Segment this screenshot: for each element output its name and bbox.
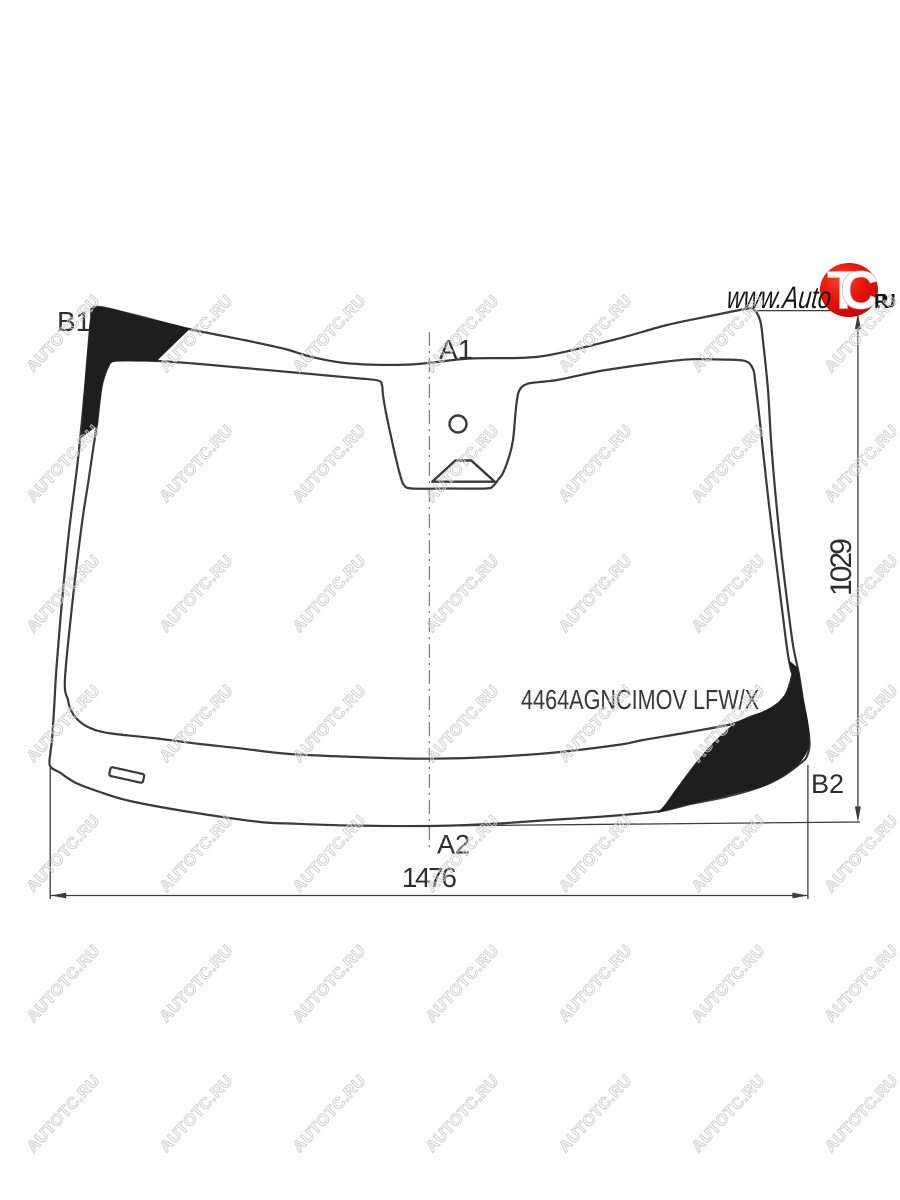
svg-text:B2: B2 <box>811 769 844 799</box>
svg-text:4464AGNCIMOV LFW/X: 4464AGNCIMOV LFW/X <box>521 684 759 715</box>
svg-text:1029: 1029 <box>825 538 858 596</box>
